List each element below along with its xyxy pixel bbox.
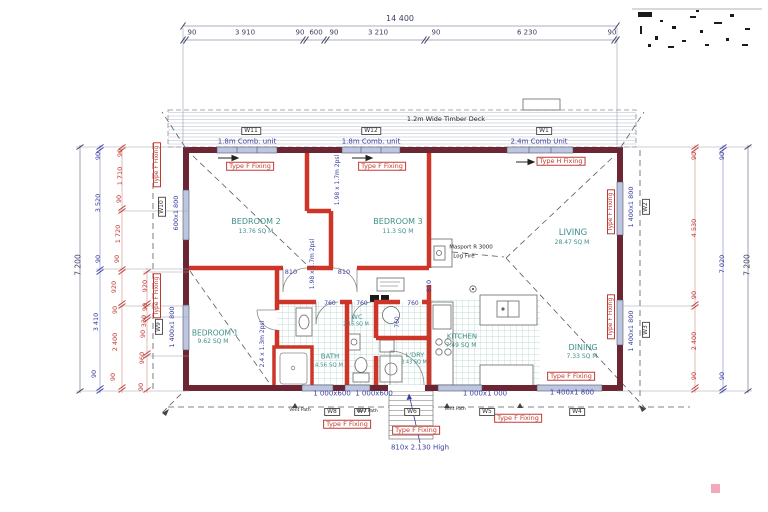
kitchen-bench-lower	[480, 365, 533, 387]
seg-dim: 6 230	[517, 30, 537, 37]
left-dim: 90	[110, 373, 117, 381]
comb-unit-label: 2.4m Comb Unit	[510, 139, 567, 146]
fixing-label: Type F Fixing	[358, 162, 406, 171]
room-area-wc: 2.16 SQ M	[343, 323, 369, 328]
left-dim: 2 400	[112, 333, 119, 352]
left-dim: 90	[140, 330, 147, 338]
door-opening-w6	[388, 385, 425, 391]
toilet-cistern	[353, 373, 369, 382]
left-dim: 1 720	[115, 225, 122, 244]
door-dim: 810	[285, 269, 297, 276]
left-dim: 330	[141, 315, 148, 327]
seg-dim: 90	[608, 30, 617, 37]
room-area-dining: 7.33 SQ M	[567, 354, 598, 360]
left-dim: 920	[142, 280, 149, 292]
room-name-living: LIVING	[559, 229, 588, 238]
right-dim: 90	[691, 291, 698, 299]
right-dim: 7 020	[719, 255, 726, 274]
window-dim-w8: 1 000x600	[313, 391, 351, 398]
fixing-label: Type F Fixing	[392, 426, 440, 435]
fixing-label: Type F Fixing	[323, 420, 371, 429]
window-w11	[217, 147, 277, 153]
slider-dim: 1.98 x 1.7m 2psl	[310, 239, 316, 289]
floor-plan-page: 14 400903 91090600903 210906 230901.2m W…	[0, 0, 768, 512]
overall-width-dim: 14 400	[386, 15, 414, 23]
window-tag-w8: W8	[324, 408, 340, 416]
room-name-dining: DINING	[568, 344, 597, 352]
window-tag-w5: W5	[479, 408, 495, 416]
window-tag-w10: W10	[158, 197, 166, 217]
seg-dim: 90	[432, 30, 441, 37]
window-tag-w3: W3	[642, 322, 650, 338]
room-name-bedroom1: BEDROOM 1	[192, 329, 238, 337]
window-w12	[342, 147, 400, 153]
fixing-label: Type F Fixing	[226, 162, 274, 171]
right-dim: 2 400	[691, 332, 698, 351]
right-overall-dim: 7 200	[743, 254, 751, 275]
door-dim: 760	[356, 301, 367, 307]
window-w2	[617, 182, 623, 235]
toilet-bowl	[355, 358, 367, 373]
window-tag-w2: W2	[642, 199, 650, 215]
window-tag-w11: W11	[241, 127, 261, 135]
left-dim: 90	[116, 195, 123, 203]
fireplace-note-line1: Masport R 3000	[449, 245, 493, 251]
room-area-ldry: 3.43 SQ M	[401, 361, 427, 366]
left-dim: 90	[117, 149, 124, 157]
window-dim-w5: 1 000x1 000	[463, 391, 507, 398]
laundry-tub	[380, 340, 394, 352]
window-tag-w1: W1	[536, 127, 552, 135]
left-dim: 1 710	[117, 167, 124, 186]
window-dim-w3: 1 400x1 800	[628, 310, 635, 351]
left-dim: 90	[142, 303, 149, 311]
door-dim: 810	[338, 269, 350, 276]
room-name-ldry: L'DRY	[406, 352, 424, 359]
left-dim: 3 520	[95, 194, 102, 213]
fixing-label: Type H Fixing	[537, 157, 586, 166]
window-dim-w7: 1 000x600	[355, 391, 393, 398]
vent-path-label: Vent Path	[289, 409, 310, 414]
right-dim: 90	[719, 372, 726, 380]
room-area-bath: 4.56 SQ M	[315, 363, 343, 369]
seg-dim: 90	[188, 30, 197, 37]
room-name-bedroom2: BEDROOM 2	[231, 218, 280, 226]
window-dim-w10: 600x1 800	[173, 196, 180, 231]
window-dim-w4: 1 400x1 800	[550, 390, 594, 397]
left-dim: 90	[112, 306, 119, 314]
site-map-thumbnail	[632, 9, 762, 48]
fixing-label: Type F Fixing	[153, 143, 161, 188]
window-tag-w9: W9	[155, 319, 163, 335]
fixing-label: Type F Fixing	[607, 295, 615, 340]
fixing-label: Type F Fixing	[547, 372, 595, 381]
comb-unit-label: 1.8m Comb. unit	[342, 139, 401, 146]
right-dim: 90	[719, 152, 726, 160]
room-area-bedroom3: 11.3 SQ M	[383, 229, 414, 235]
window-dim-w9: 1 400x1 800	[169, 306, 176, 347]
room-area-bedroom2: 13.76 SQ M	[239, 229, 274, 235]
window-w10	[183, 190, 189, 240]
right-dim: 90	[691, 152, 698, 160]
left-dim: 920	[111, 281, 118, 293]
left-dim: 3 410	[93, 313, 100, 332]
slider-dim: 2.4 x 1.3m 2psl	[260, 321, 266, 368]
room-name-wc: WC	[352, 314, 363, 321]
note-box	[377, 278, 404, 291]
left-dim: 90	[95, 152, 102, 160]
kitchen-appliance	[433, 305, 451, 329]
window-tag-w4: W4	[569, 408, 585, 416]
seg-dim: 600	[309, 30, 322, 37]
comb-unit-label: 1.8m Comb. unit	[218, 139, 277, 146]
left-dim: 90	[114, 255, 121, 263]
left-dim: 90	[95, 255, 102, 263]
washing-machine	[380, 356, 402, 382]
room-name-bath: BATH	[321, 354, 340, 361]
door-dim: 810	[426, 280, 433, 292]
shower-tray	[280, 353, 307, 384]
room-area-kitchen: 7.49 SQ M	[446, 343, 477, 349]
seg-dim: 3 210	[368, 30, 388, 37]
chimney-flue	[523, 99, 560, 110]
door-dim: 760	[407, 301, 418, 307]
door-height-note: 810x 2.130 High	[391, 445, 449, 452]
door-dim: 760	[324, 301, 335, 307]
window-tag-w12: W12	[361, 127, 381, 135]
seg-dim: 90	[296, 30, 305, 37]
slider-dim: 1.98 x 1.7m 2psl	[335, 155, 341, 205]
deck-label: 1.2m Wide Timber Deck	[407, 116, 485, 123]
vent-path-label: Vent Path	[356, 410, 377, 415]
room-area-bedroom1: 9.62 SQ M	[198, 339, 229, 345]
window-w3	[617, 300, 623, 345]
seg-dim: 90	[330, 30, 339, 37]
room-name-kitchen: KITCHEN	[447, 334, 477, 341]
window-w1	[507, 147, 573, 153]
vent-path-label: Vent Path	[444, 408, 465, 413]
fixing-label: Type F Fixing	[494, 414, 542, 423]
wc-basin	[348, 334, 360, 350]
fixing-label: Type F Fixing	[607, 190, 615, 235]
left-dim: 90	[91, 370, 98, 378]
window-w9	[183, 305, 189, 350]
fireplace-note-line2: Log Fire	[453, 254, 474, 260]
left-overall-dim: 7 200	[74, 254, 82, 275]
right-dim: 90	[691, 372, 698, 380]
seg-dim: 3 910	[235, 30, 255, 37]
left-dim: 90	[138, 383, 145, 391]
right-dim: 4 530	[691, 219, 698, 238]
fireplace	[429, 239, 452, 267]
window-dim-w2: 1 400x1 800	[628, 186, 635, 227]
room-area-living: 28.47 SQ M	[555, 240, 590, 246]
window-tag-w6: W6	[404, 408, 420, 416]
pink-marker	[711, 484, 720, 493]
left-dim: 960	[139, 352, 146, 364]
door-dim: 760	[395, 316, 401, 327]
bath-vanity	[296, 308, 312, 336]
fixing-label: Type F Fixing	[153, 274, 161, 319]
room-name-bedroom3: BEDROOM 3	[373, 218, 422, 226]
